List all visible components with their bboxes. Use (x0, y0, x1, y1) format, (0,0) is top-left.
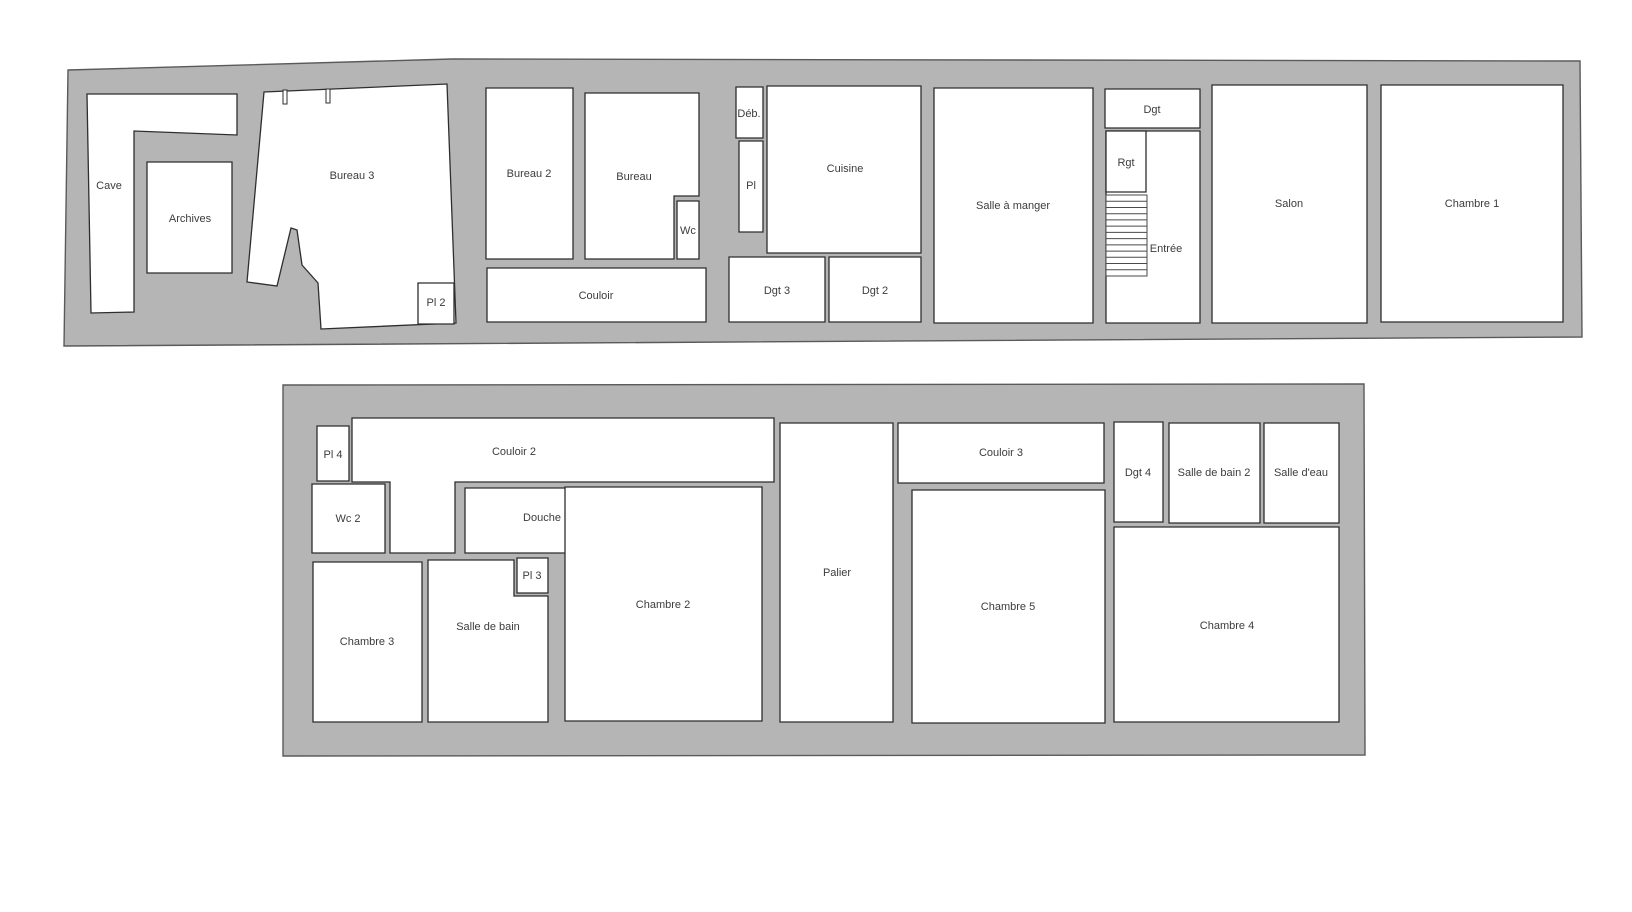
room-cuisine-label: Cuisine (827, 163, 864, 175)
room-rgt-label: Rgt (1117, 157, 1134, 169)
room-salle-de-bain-label: Salle de bain (456, 621, 520, 633)
room-dgt-3-label: Dgt 3 (764, 285, 790, 297)
room-bureau-3-label: Bureau 3 (330, 170, 375, 182)
room-salle-de-bain-2-label: Salle de bain 2 (1178, 467, 1251, 479)
room-couloir-3-label: Couloir 3 (979, 447, 1023, 459)
room-chambre-5-label: Chambre 5 (981, 601, 1035, 613)
room-douche-label: Douche (523, 512, 561, 524)
ground-floor-wall-stub-0 (283, 90, 287, 104)
room-bureau-label: Bureau (616, 171, 651, 183)
room-pl-label: Pl (746, 180, 756, 192)
room-chambre-4-label: Chambre 4 (1200, 620, 1254, 632)
ground-floor-staircase (1106, 195, 1147, 276)
room-dgt-2-label: Dgt 2 (862, 285, 888, 297)
room-salle-d-eau-label: Salle d'eau (1274, 467, 1328, 479)
room-pl-4-label: Pl 4 (324, 449, 343, 461)
room-wc-label: Wc (680, 225, 696, 237)
room-dgt-label: Dgt (1143, 104, 1160, 116)
room-wc-2-label: Wc 2 (335, 513, 360, 525)
upper-floor-plan: Pl 4Couloir 2Wc 2DoucheChambre 3Salle de… (283, 384, 1365, 756)
room-pl-3-label: Pl 3 (523, 570, 542, 582)
room-chambre-2-label: Chambre 2 (636, 599, 690, 611)
ground-floor-wall-stub-1 (326, 89, 330, 103)
room-palier-label: Palier (823, 567, 851, 579)
floorplan-canvas: CaveArchivesBureau 3Pl 2Bureau 2BureauWc… (0, 0, 1632, 912)
room-salle-a-manger-label: Salle à manger (976, 200, 1050, 212)
room-chambre-3-label: Chambre 3 (340, 636, 394, 648)
room-couloir-2-label: Couloir 2 (492, 446, 536, 458)
room-pl-2-label: Pl 2 (427, 297, 446, 309)
room-archives-label: Archives (169, 213, 212, 225)
room-salon-label: Salon (1275, 198, 1303, 210)
floorplan-page: CaveArchivesBureau 3Pl 2Bureau 2BureauWc… (0, 0, 1632, 912)
room-entree-label: Entrée (1150, 243, 1182, 255)
room-bureau-2-label: Bureau 2 (507, 168, 552, 180)
room-dgt-4-label: Dgt 4 (1125, 467, 1151, 479)
room-cave-label: Cave (96, 180, 122, 192)
ground-floor-plan: CaveArchivesBureau 3Pl 2Bureau 2BureauWc… (64, 59, 1582, 346)
room-couloir-label: Couloir (579, 290, 614, 302)
room-chambre-1-label: Chambre 1 (1445, 198, 1499, 210)
room-deb-label: Déb. (737, 108, 760, 120)
